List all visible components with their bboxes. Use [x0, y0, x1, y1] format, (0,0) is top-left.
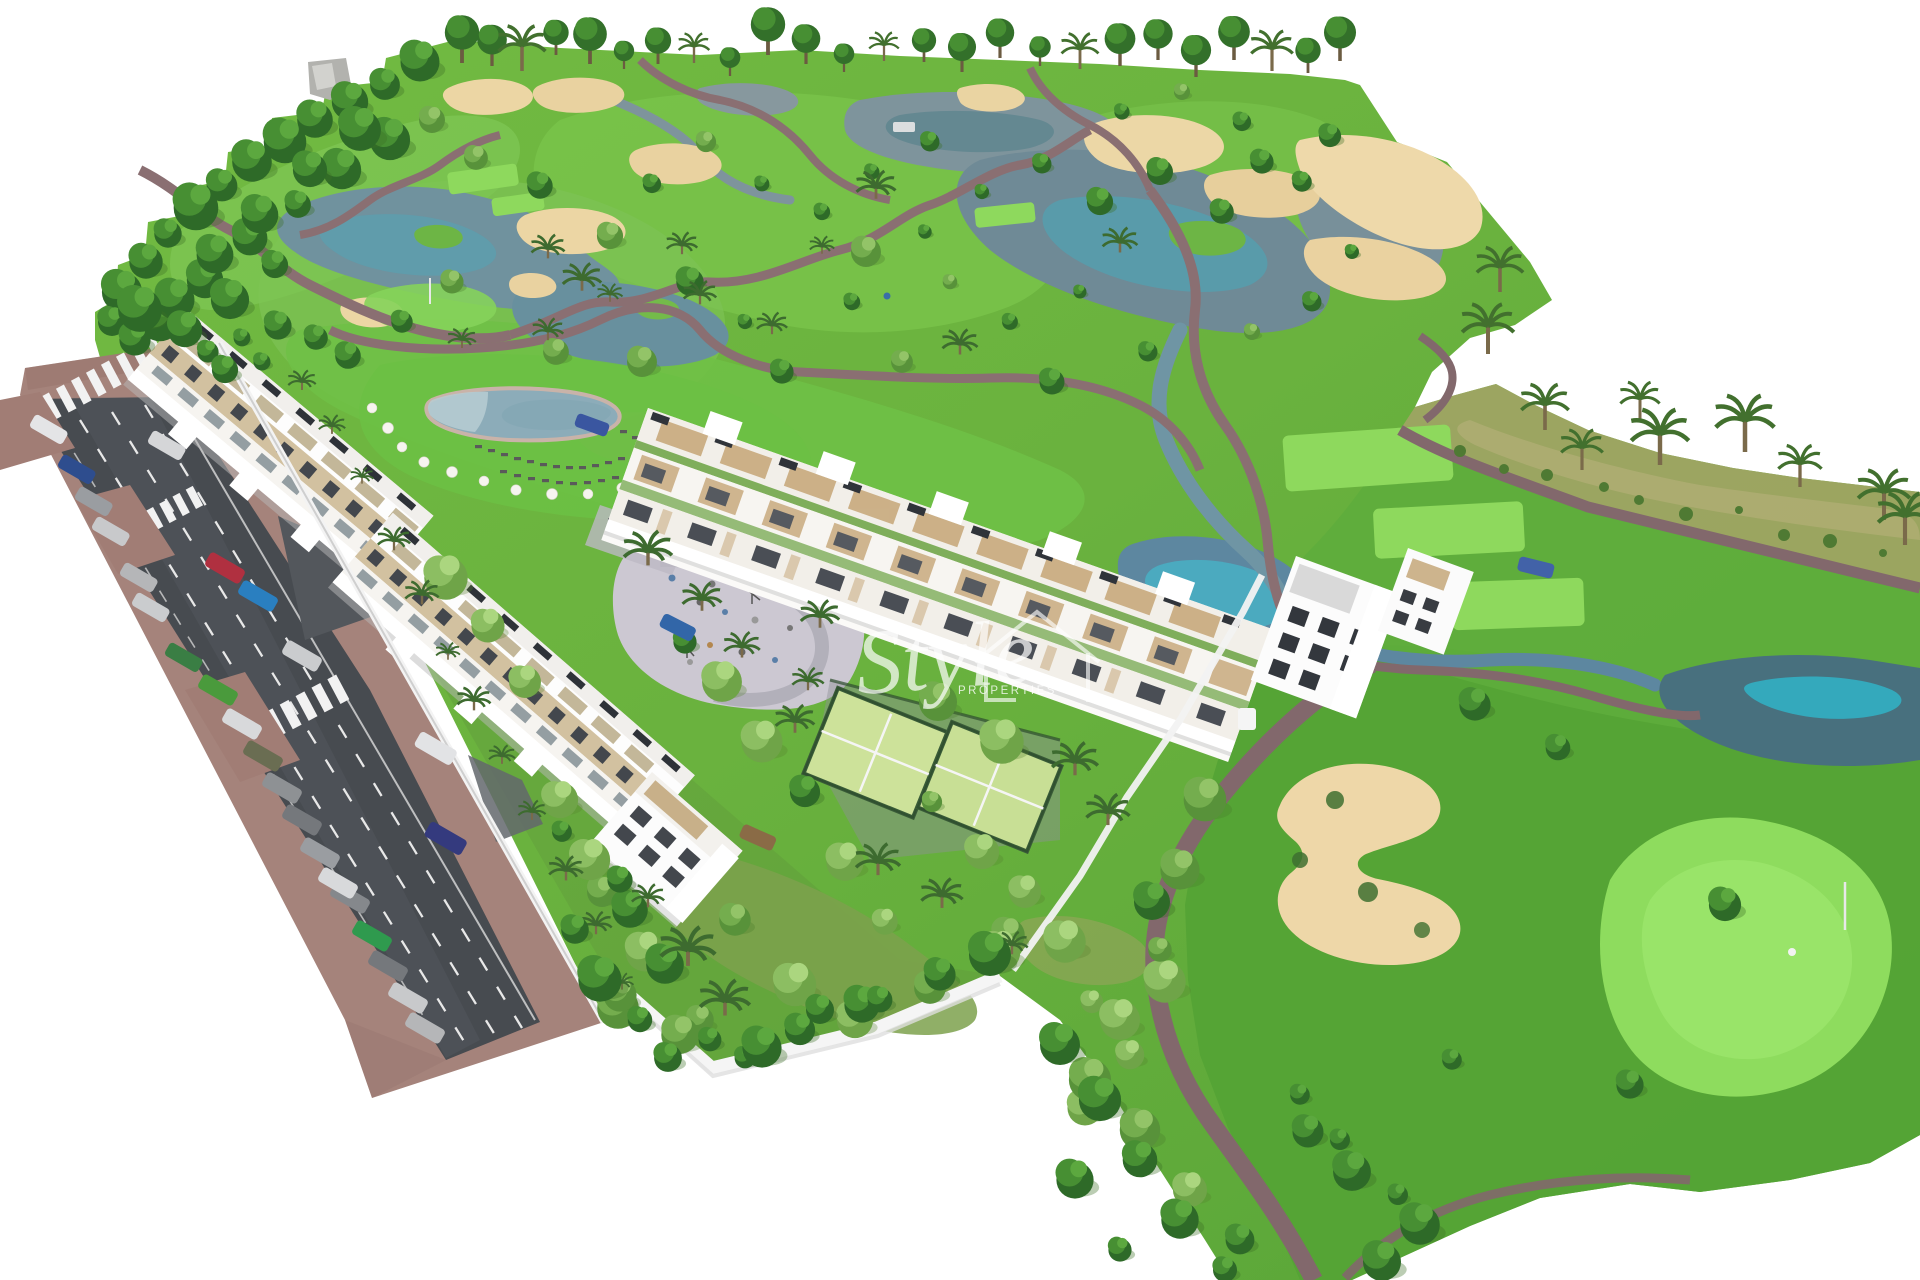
svg-text:PROPERTIES: PROPERTIES: [958, 685, 1057, 697]
